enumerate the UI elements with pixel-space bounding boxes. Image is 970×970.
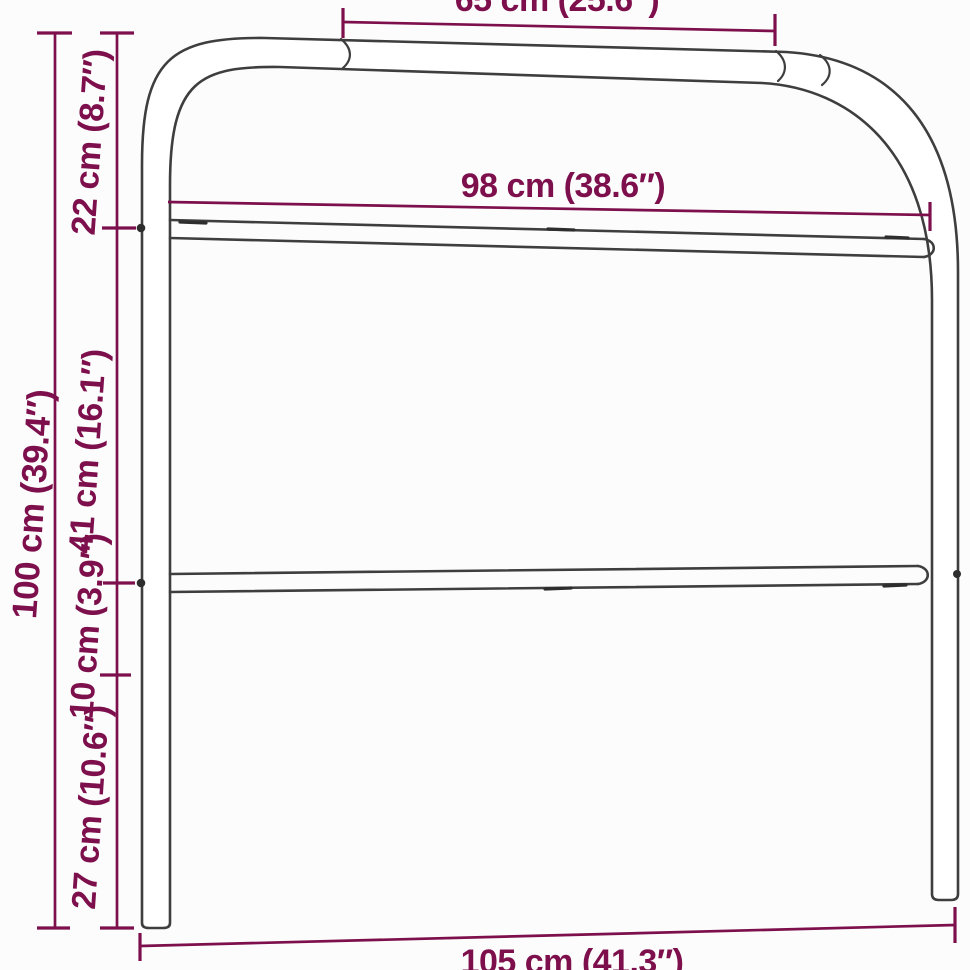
middle-rail-rivet-dash-1 — [545, 588, 571, 589]
total-height-dimension: 100 cm (39.4″) — [5, 33, 72, 928]
inner-width-label: 98 cm (38.6″) — [461, 167, 665, 205]
middle-rail-rivet-dash-2 — [884, 585, 906, 586]
screw-left-lower — [137, 579, 146, 588]
inner-width-dimension: 98 cm (38.6″) — [168, 167, 930, 231]
segment-10-label: 10 cm (3.9″) — [63, 532, 114, 720]
upper-rail-bottom-edge — [170, 238, 924, 257]
leg-screws — [137, 224, 961, 588]
segment-27-label: 27 cm (10.6″) — [65, 704, 117, 911]
total-height-label: 100 cm (39.4″) — [5, 388, 60, 620]
dimension-diagram-canvas: 100 cm (39.4″) 22 cm (8.7″) 41 cm (16.1″… — [0, 0, 970, 970]
segment-41-label: 41 cm (16.1″) — [62, 348, 114, 555]
middle-rail-end-cap — [918, 566, 928, 584]
total-width-dimension: 105 cm (41.3″) — [140, 907, 955, 970]
height-segments-dimension: 22 cm (8.7″) 41 cm (16.1″) 10 cm (3.9″) … — [62, 33, 136, 928]
middle-rail-top-edge — [170, 566, 918, 574]
top-width-label: 65 cm (25.6″) — [455, 0, 659, 19]
segment-22-label: 22 cm (8.7″) — [65, 48, 116, 236]
upper-rail — [170, 220, 934, 257]
top-width-line — [343, 22, 775, 31]
screw-right-lower — [953, 570, 961, 578]
total-width-label: 105 cm (41.3″) — [461, 943, 684, 970]
screw-left-upper — [137, 224, 146, 233]
upper-rail-rivet-dash-3 — [886, 237, 908, 238]
top-width-dimension: 65 cm (25.6″) — [343, 0, 775, 46]
headboard-dimension-diagram: 100 cm (39.4″) 22 cm (8.7″) 41 cm (16.1″… — [0, 0, 970, 970]
upper-rail-rivet-dash-2 — [548, 229, 574, 230]
middle-rail — [170, 566, 928, 592]
upper-rail-rivet-dash-1 — [180, 222, 206, 223]
